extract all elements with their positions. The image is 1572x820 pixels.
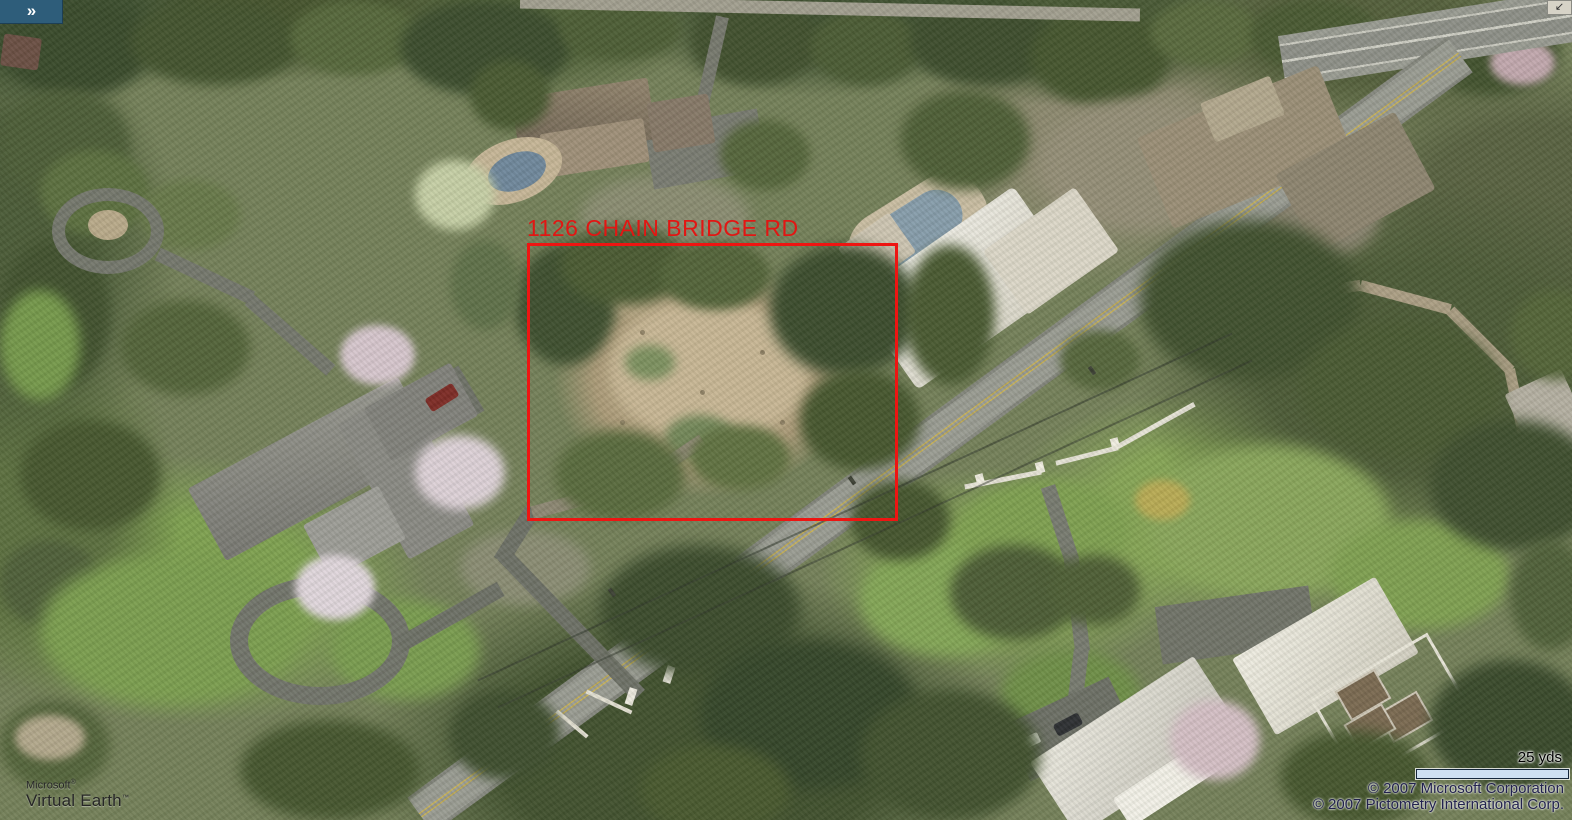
tree-cluster xyxy=(1150,0,1260,65)
scale-label: 25 yds xyxy=(1518,749,1562,766)
tree-cluster xyxy=(20,420,160,530)
driveway-island xyxy=(88,210,128,240)
logo-virtual-earth: Virtual Earth™ xyxy=(26,792,129,809)
tree-cluster xyxy=(1050,555,1140,625)
flowering-tree xyxy=(295,555,375,620)
registered-mark: ® xyxy=(71,779,76,786)
expand-panel-button[interactable]: » xyxy=(0,0,63,24)
tree-cluster xyxy=(130,0,300,85)
flowering-tree xyxy=(415,435,505,510)
arrow-down-left-icon: ↙ xyxy=(1555,1,1564,13)
copyright-line-2: © 2007 Pictometry International Corp. xyxy=(1313,796,1564,813)
tree-cluster xyxy=(720,120,810,190)
tree-cluster xyxy=(1030,10,1170,105)
garage-wing xyxy=(646,93,715,152)
virtual-earth-map[interactable]: 1126 CHAIN BRIDGE RD » ↙ 25 yds © 2007 M… xyxy=(0,0,1572,820)
garden-path-patch xyxy=(15,715,85,760)
virtual-earth-logo: Microsoft® Virtual Earth™ xyxy=(26,779,129,809)
tree-cluster xyxy=(290,0,420,75)
flowering-tree xyxy=(340,325,415,385)
flowering-tree xyxy=(415,160,495,230)
tree-cluster xyxy=(450,240,520,330)
lawn-patch xyxy=(0,290,80,400)
double-chevron-icon: » xyxy=(27,1,35,20)
flowering-tree xyxy=(1170,700,1260,780)
copyright-line-1: © 2007 Microsoft Corporation xyxy=(1368,780,1564,797)
trademark-mark: ™ xyxy=(122,794,129,801)
tree-cluster xyxy=(810,10,920,85)
tree-cluster xyxy=(120,300,250,395)
tree-cluster xyxy=(240,720,420,820)
tree-cluster xyxy=(860,690,1040,820)
scale-bar xyxy=(1416,769,1569,779)
property-address-label: 1126 CHAIN BRIDGE RD xyxy=(527,215,799,242)
shed-roof xyxy=(0,34,42,71)
tree-cluster xyxy=(900,90,1030,190)
property-highlight-box xyxy=(527,243,898,521)
yellow-shrub xyxy=(1135,480,1190,520)
tree-cluster xyxy=(470,60,550,130)
tree-cluster xyxy=(905,245,995,385)
pan-corner-button[interactable]: ↙ xyxy=(1547,0,1572,15)
